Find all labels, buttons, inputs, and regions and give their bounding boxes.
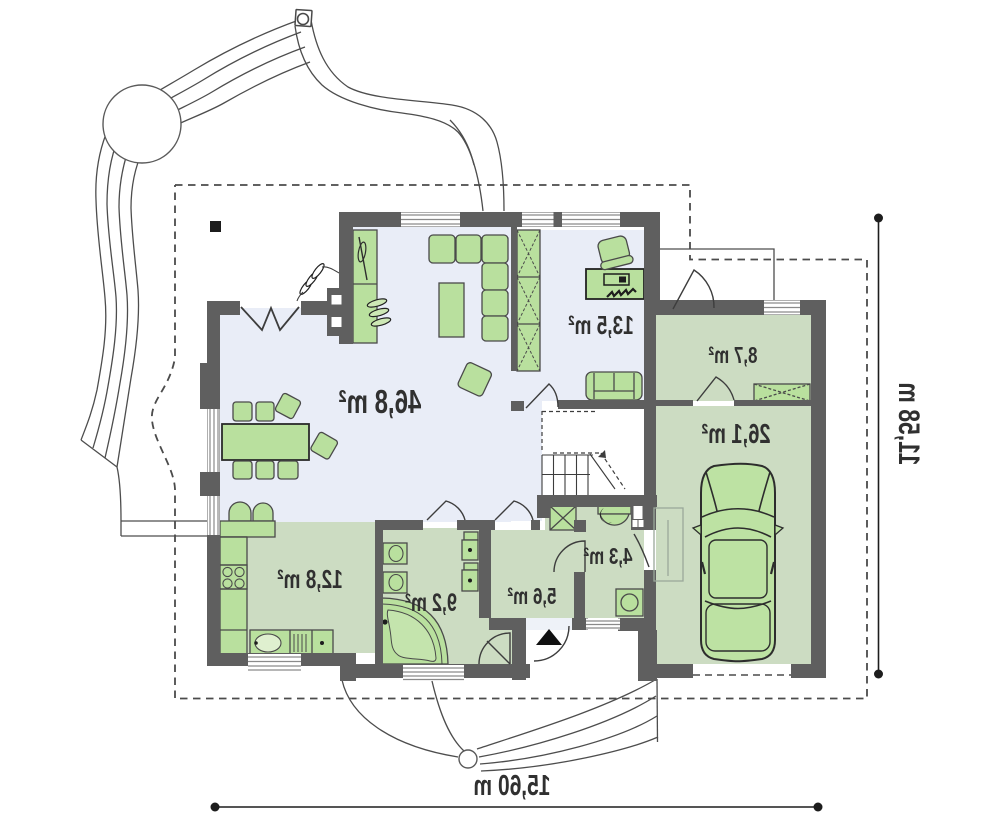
svg-text:15,60 m: 15,60 m [473, 770, 550, 802]
svg-text:9,2 m²: 9,2 m² [405, 588, 457, 617]
svg-text:46,8 m²: 46,8 m² [338, 384, 421, 421]
svg-text:4,3 m²: 4,3 m² [583, 543, 632, 569]
svg-text:8,7 m²: 8,7 m² [708, 342, 757, 368]
svg-text:26,1 m²: 26,1 m² [702, 419, 771, 450]
svg-text:13,5 m²: 13,5 m² [568, 310, 634, 340]
svg-text:5,6 m²: 5,6 m² [507, 583, 556, 609]
svg-text:11,58 m: 11,58 m [892, 382, 926, 465]
svg-text:12,8 m²: 12,8 m² [277, 564, 343, 594]
